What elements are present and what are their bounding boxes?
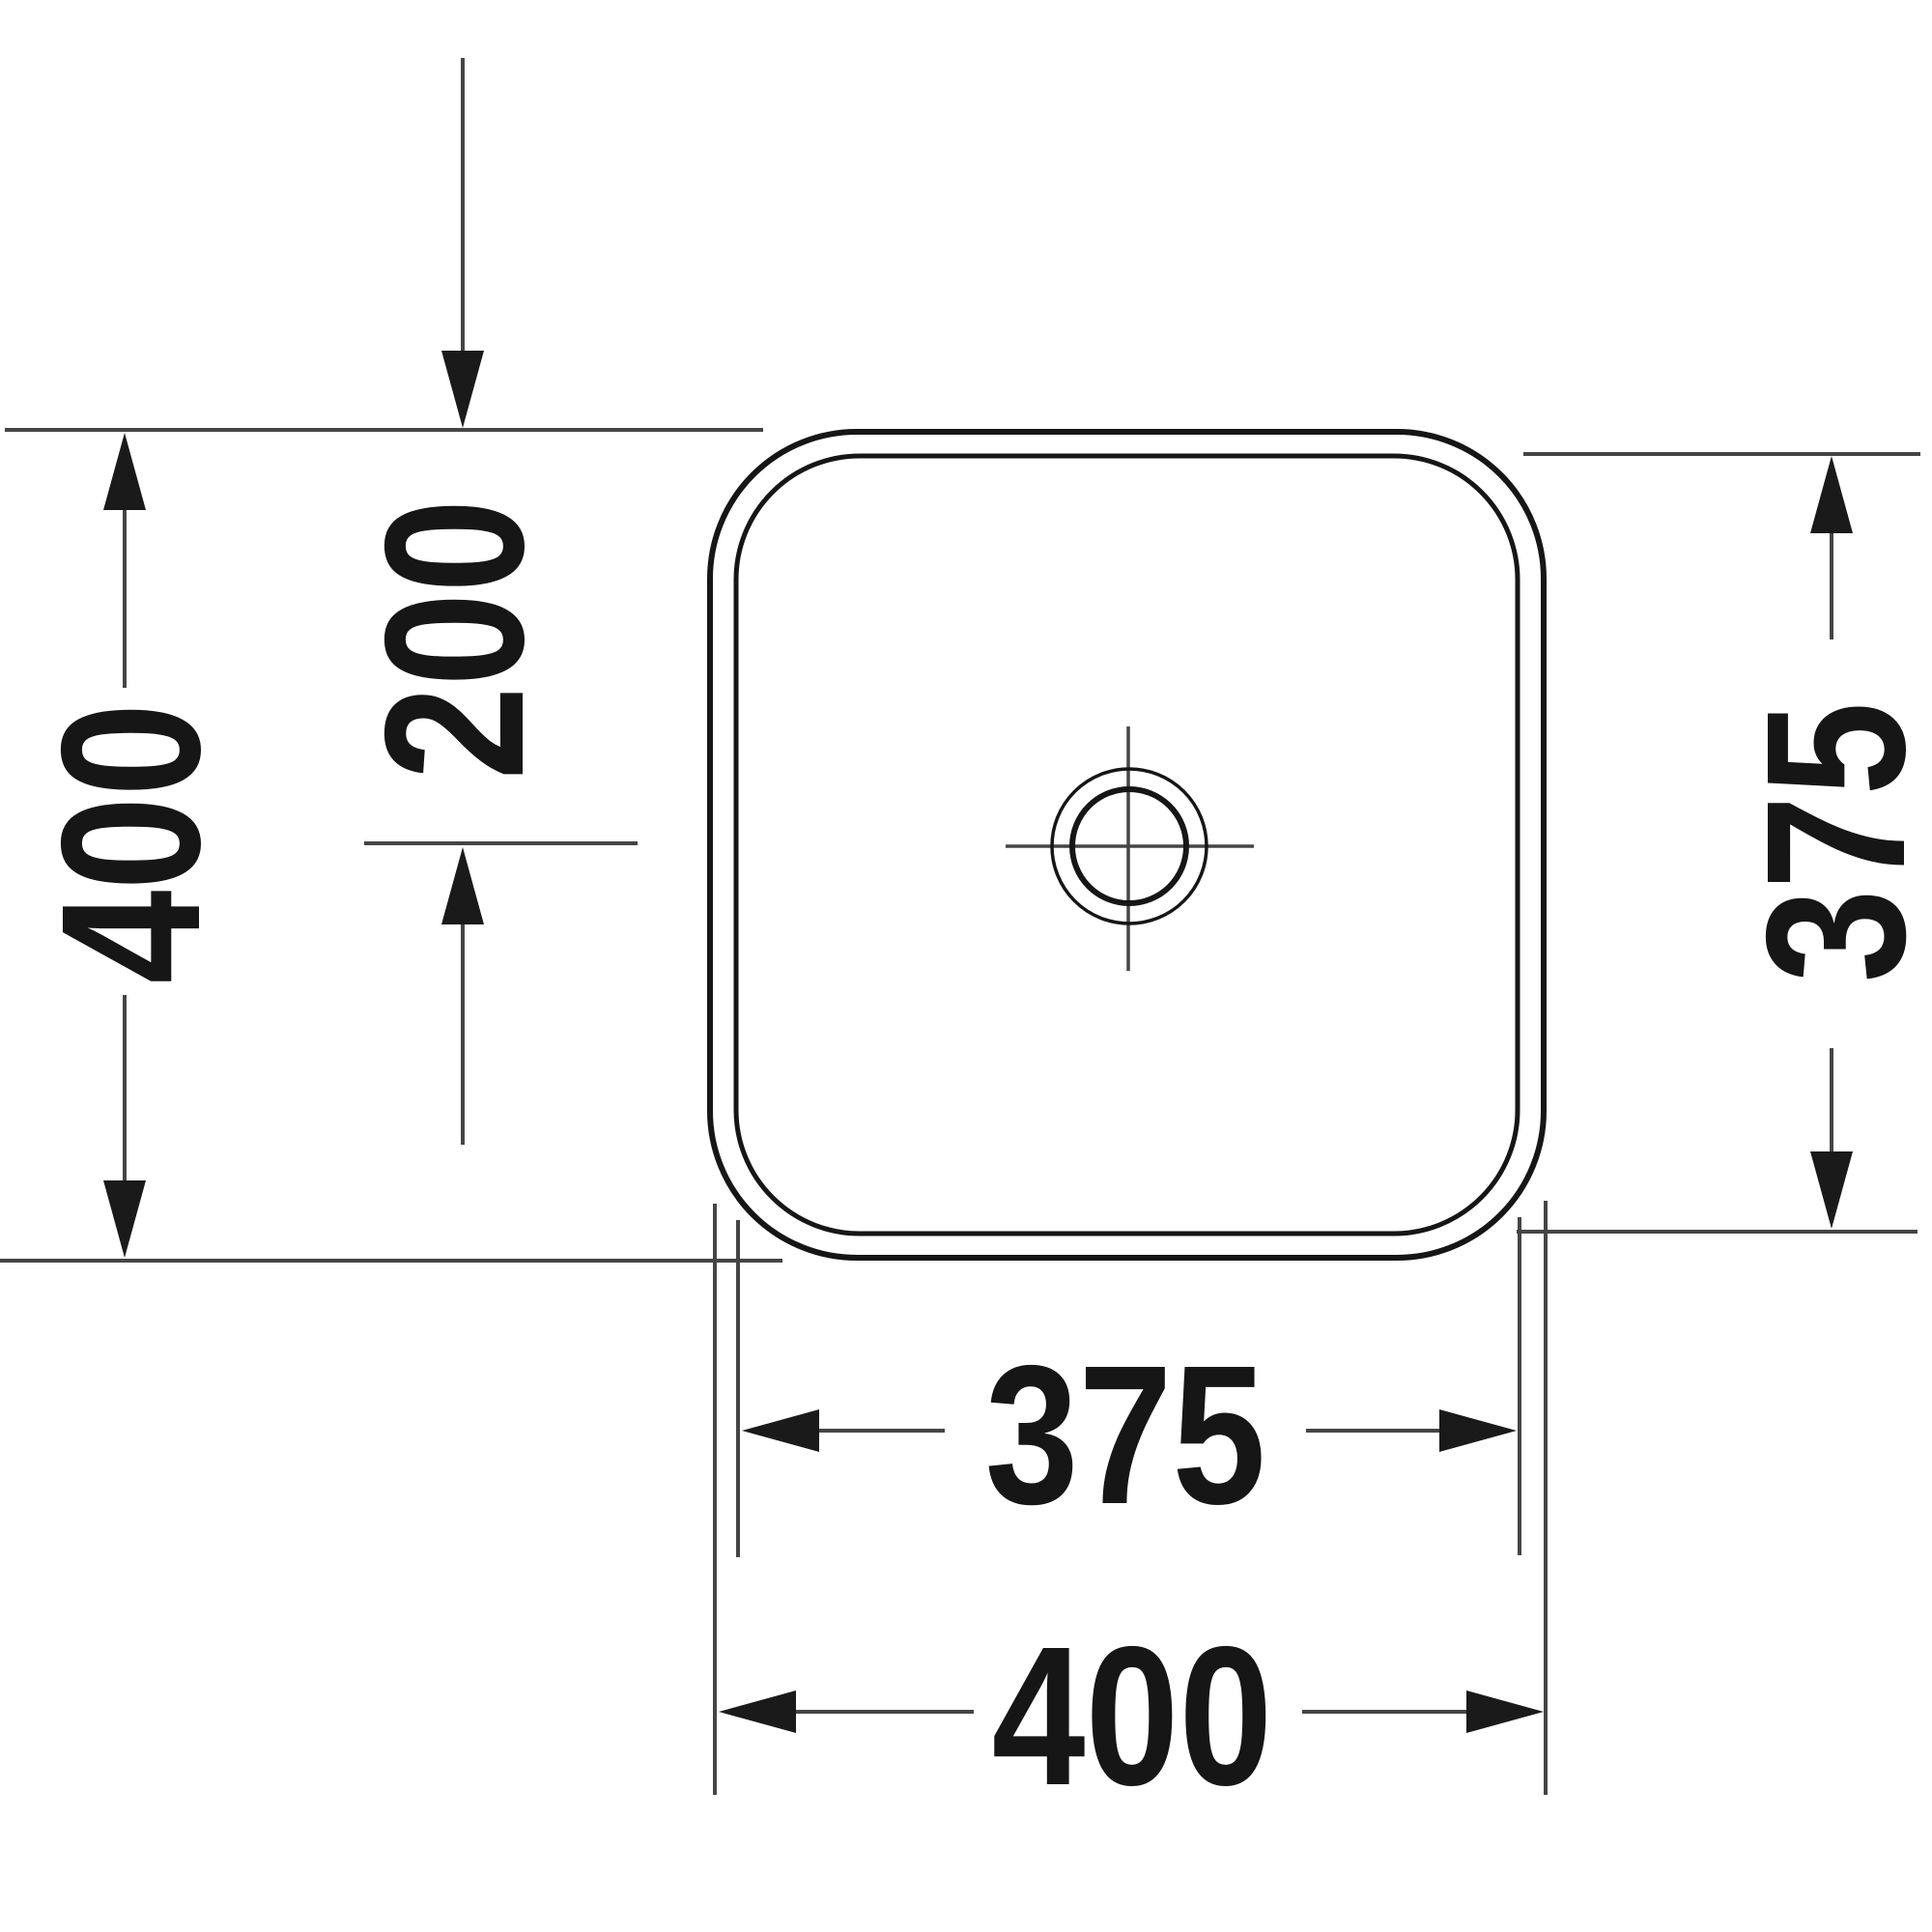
arrowhead-left-icon (719, 1690, 796, 1733)
dimension-inner-height: 375 (1726, 456, 1932, 1229)
dimension-outer-width: 400 (719, 1606, 1544, 1827)
technical-drawing-canvas: 400 200 375 375 400 (0, 0, 1932, 1932)
arrowhead-down-icon (441, 351, 484, 428)
dimension-label-inner-width: 375 (985, 1325, 1266, 1546)
basin-dimension-diagram: 400 200 375 375 400 (0, 0, 1932, 1932)
extension-lines (0, 430, 1920, 1795)
arrowhead-up-icon (1810, 456, 1853, 533)
arrowhead-down-icon (103, 1180, 146, 1258)
drain-group (1006, 726, 1254, 971)
arrowhead-up-icon (441, 847, 484, 924)
dimension-drain-offset: 200 (345, 58, 565, 1145)
dimension-label-outer-height: 400 (21, 703, 241, 984)
arrowhead-right-icon (1439, 1409, 1517, 1452)
dimension-label-drain-offset: 200 (345, 499, 565, 781)
dimension-inner-width: 375 (742, 1325, 1517, 1546)
arrowhead-left-icon (742, 1409, 819, 1452)
dimension-label-inner-height: 375 (1726, 702, 1932, 983)
arrowhead-up-icon (103, 433, 146, 510)
dimension-label-outer-width: 400 (992, 1606, 1273, 1827)
dimension-outer-height: 400 (21, 433, 241, 1258)
arrowhead-down-icon (1810, 1151, 1853, 1229)
arrowhead-right-icon (1466, 1690, 1544, 1733)
